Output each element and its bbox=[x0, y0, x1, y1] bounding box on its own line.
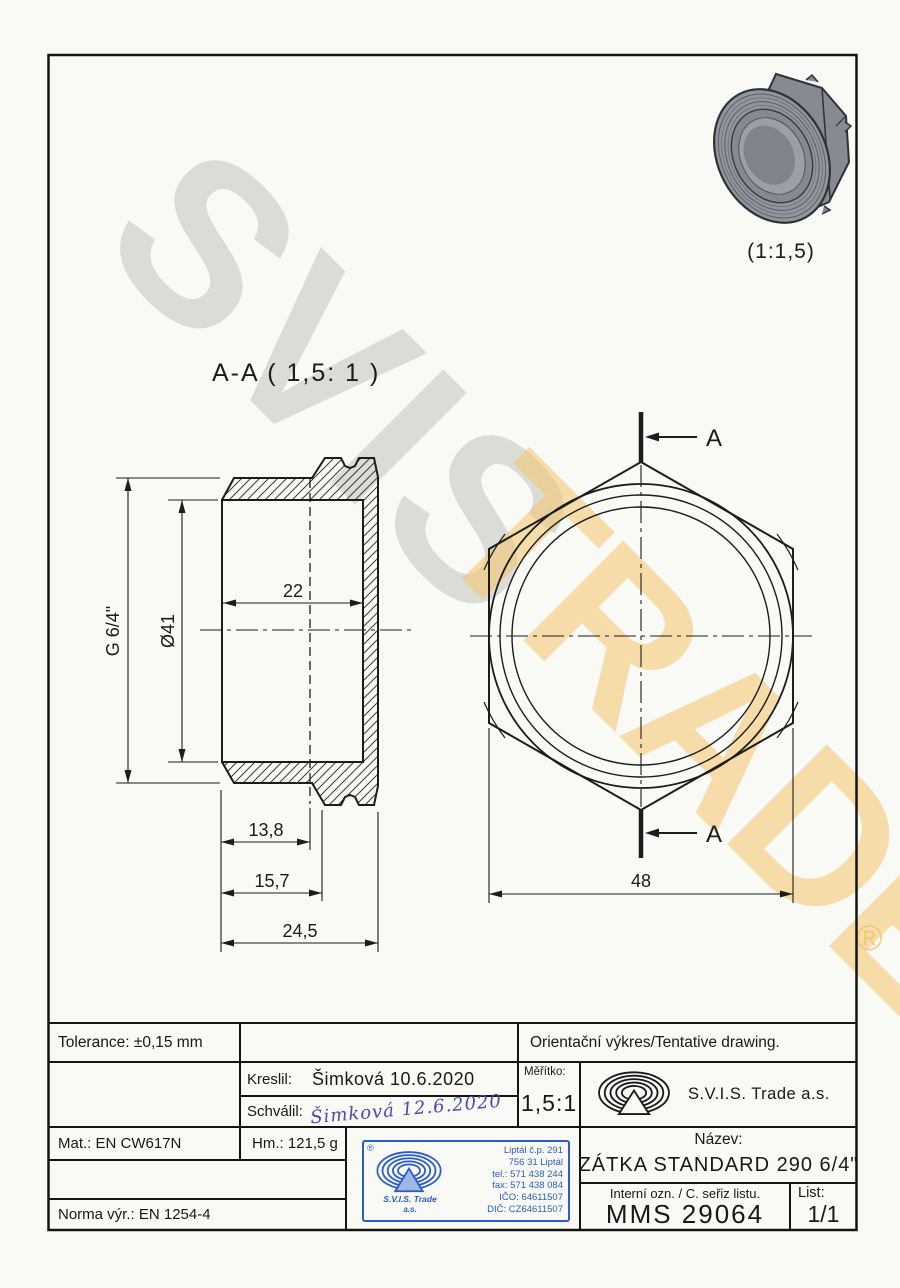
chamfer-arc-ul bbox=[484, 534, 505, 570]
cut-label-bottom: A bbox=[706, 821, 722, 848]
company-logo-icon bbox=[599, 1072, 669, 1114]
stamp-address: Liptál č.p. 291 756 31 Liptál tel.: 571 … bbox=[487, 1145, 563, 1216]
dim-15-7: 15,7 bbox=[254, 871, 289, 891]
list-value: 1/1 bbox=[790, 1199, 857, 1229]
kreslil-label: Kreslil: bbox=[247, 1062, 292, 1096]
stamp-address-line: Liptál č.p. 291 bbox=[487, 1145, 563, 1157]
preview-3d bbox=[691, 69, 852, 243]
meritko-value: 1,5:1 bbox=[521, 1086, 577, 1120]
company-name: S.V.I.S. Trade a.s. bbox=[688, 1062, 830, 1127]
stamp-address-line: 756 31 Liptál bbox=[487, 1157, 563, 1169]
section-view bbox=[200, 458, 415, 805]
stamp-company-line1: S.V.I.S. Trade bbox=[370, 1194, 450, 1204]
chamfer-arc-ll bbox=[484, 702, 505, 738]
company-stamp: ® S.V.I.S. Trade a.s. Liptál č.p. 291 75… bbox=[362, 1140, 570, 1222]
stamp-address-line: IČO: 64611507 bbox=[487, 1192, 563, 1204]
stamp-registered-icon: ® bbox=[367, 1143, 374, 1153]
meritko-label: Měřítko: bbox=[524, 1064, 566, 1080]
dim-thread: G 6/4" bbox=[103, 606, 123, 656]
dim-bore: Ø41 bbox=[158, 614, 178, 648]
chamfer-arc-lr bbox=[777, 702, 798, 738]
drawing-sheet: SVIS TRADE ® bbox=[0, 0, 900, 1288]
schvalil-label: Schválil: bbox=[247, 1096, 303, 1127]
tolerance-field: Tolerance: ±0,15 mm bbox=[58, 1023, 203, 1062]
cut-label-top: A bbox=[706, 425, 722, 452]
section-body bbox=[222, 458, 378, 805]
stamp-logo-icon bbox=[374, 1150, 444, 1194]
stamp-address-line: tel.: 571 438 244 bbox=[487, 1169, 563, 1181]
section-dimensions bbox=[116, 478, 378, 952]
material-field: Mat.: EN CW617N bbox=[58, 1127, 181, 1160]
weight-field: Hm.: 121,5 g bbox=[252, 1127, 338, 1160]
dim-24-5: 24,5 bbox=[282, 921, 317, 941]
dim-48: 48 bbox=[631, 871, 651, 891]
nazev-value: ZÁTKA STANDARD 290 6/4" bbox=[580, 1150, 857, 1180]
preview-scale-label: (1:1,5) bbox=[747, 240, 815, 263]
norma-field: Norma výr.: EN 1254-4 bbox=[58, 1199, 211, 1230]
nazev-label: Název: bbox=[580, 1129, 857, 1151]
hex-view bbox=[470, 412, 812, 903]
cut-arrow-top bbox=[645, 433, 659, 442]
orientation-note: Orientační výkres/Tentative drawing. bbox=[530, 1023, 780, 1062]
interni-value: MMS 29064 bbox=[580, 1199, 790, 1229]
stamp-company-line2: a.s. bbox=[370, 1205, 450, 1214]
cut-arrow-bottom bbox=[645, 829, 659, 838]
stamp-address-line: fax: 571 438 084 bbox=[487, 1180, 563, 1192]
dim-13-8: 13,8 bbox=[248, 820, 283, 840]
stamp-address-line: DIČ: CZ64611507 bbox=[487, 1204, 563, 1216]
section-view-label: A-A ( 1,5: 1 ) bbox=[212, 359, 380, 387]
chamfer-arc-ur bbox=[777, 534, 798, 570]
dim-22: 22 bbox=[283, 581, 303, 601]
